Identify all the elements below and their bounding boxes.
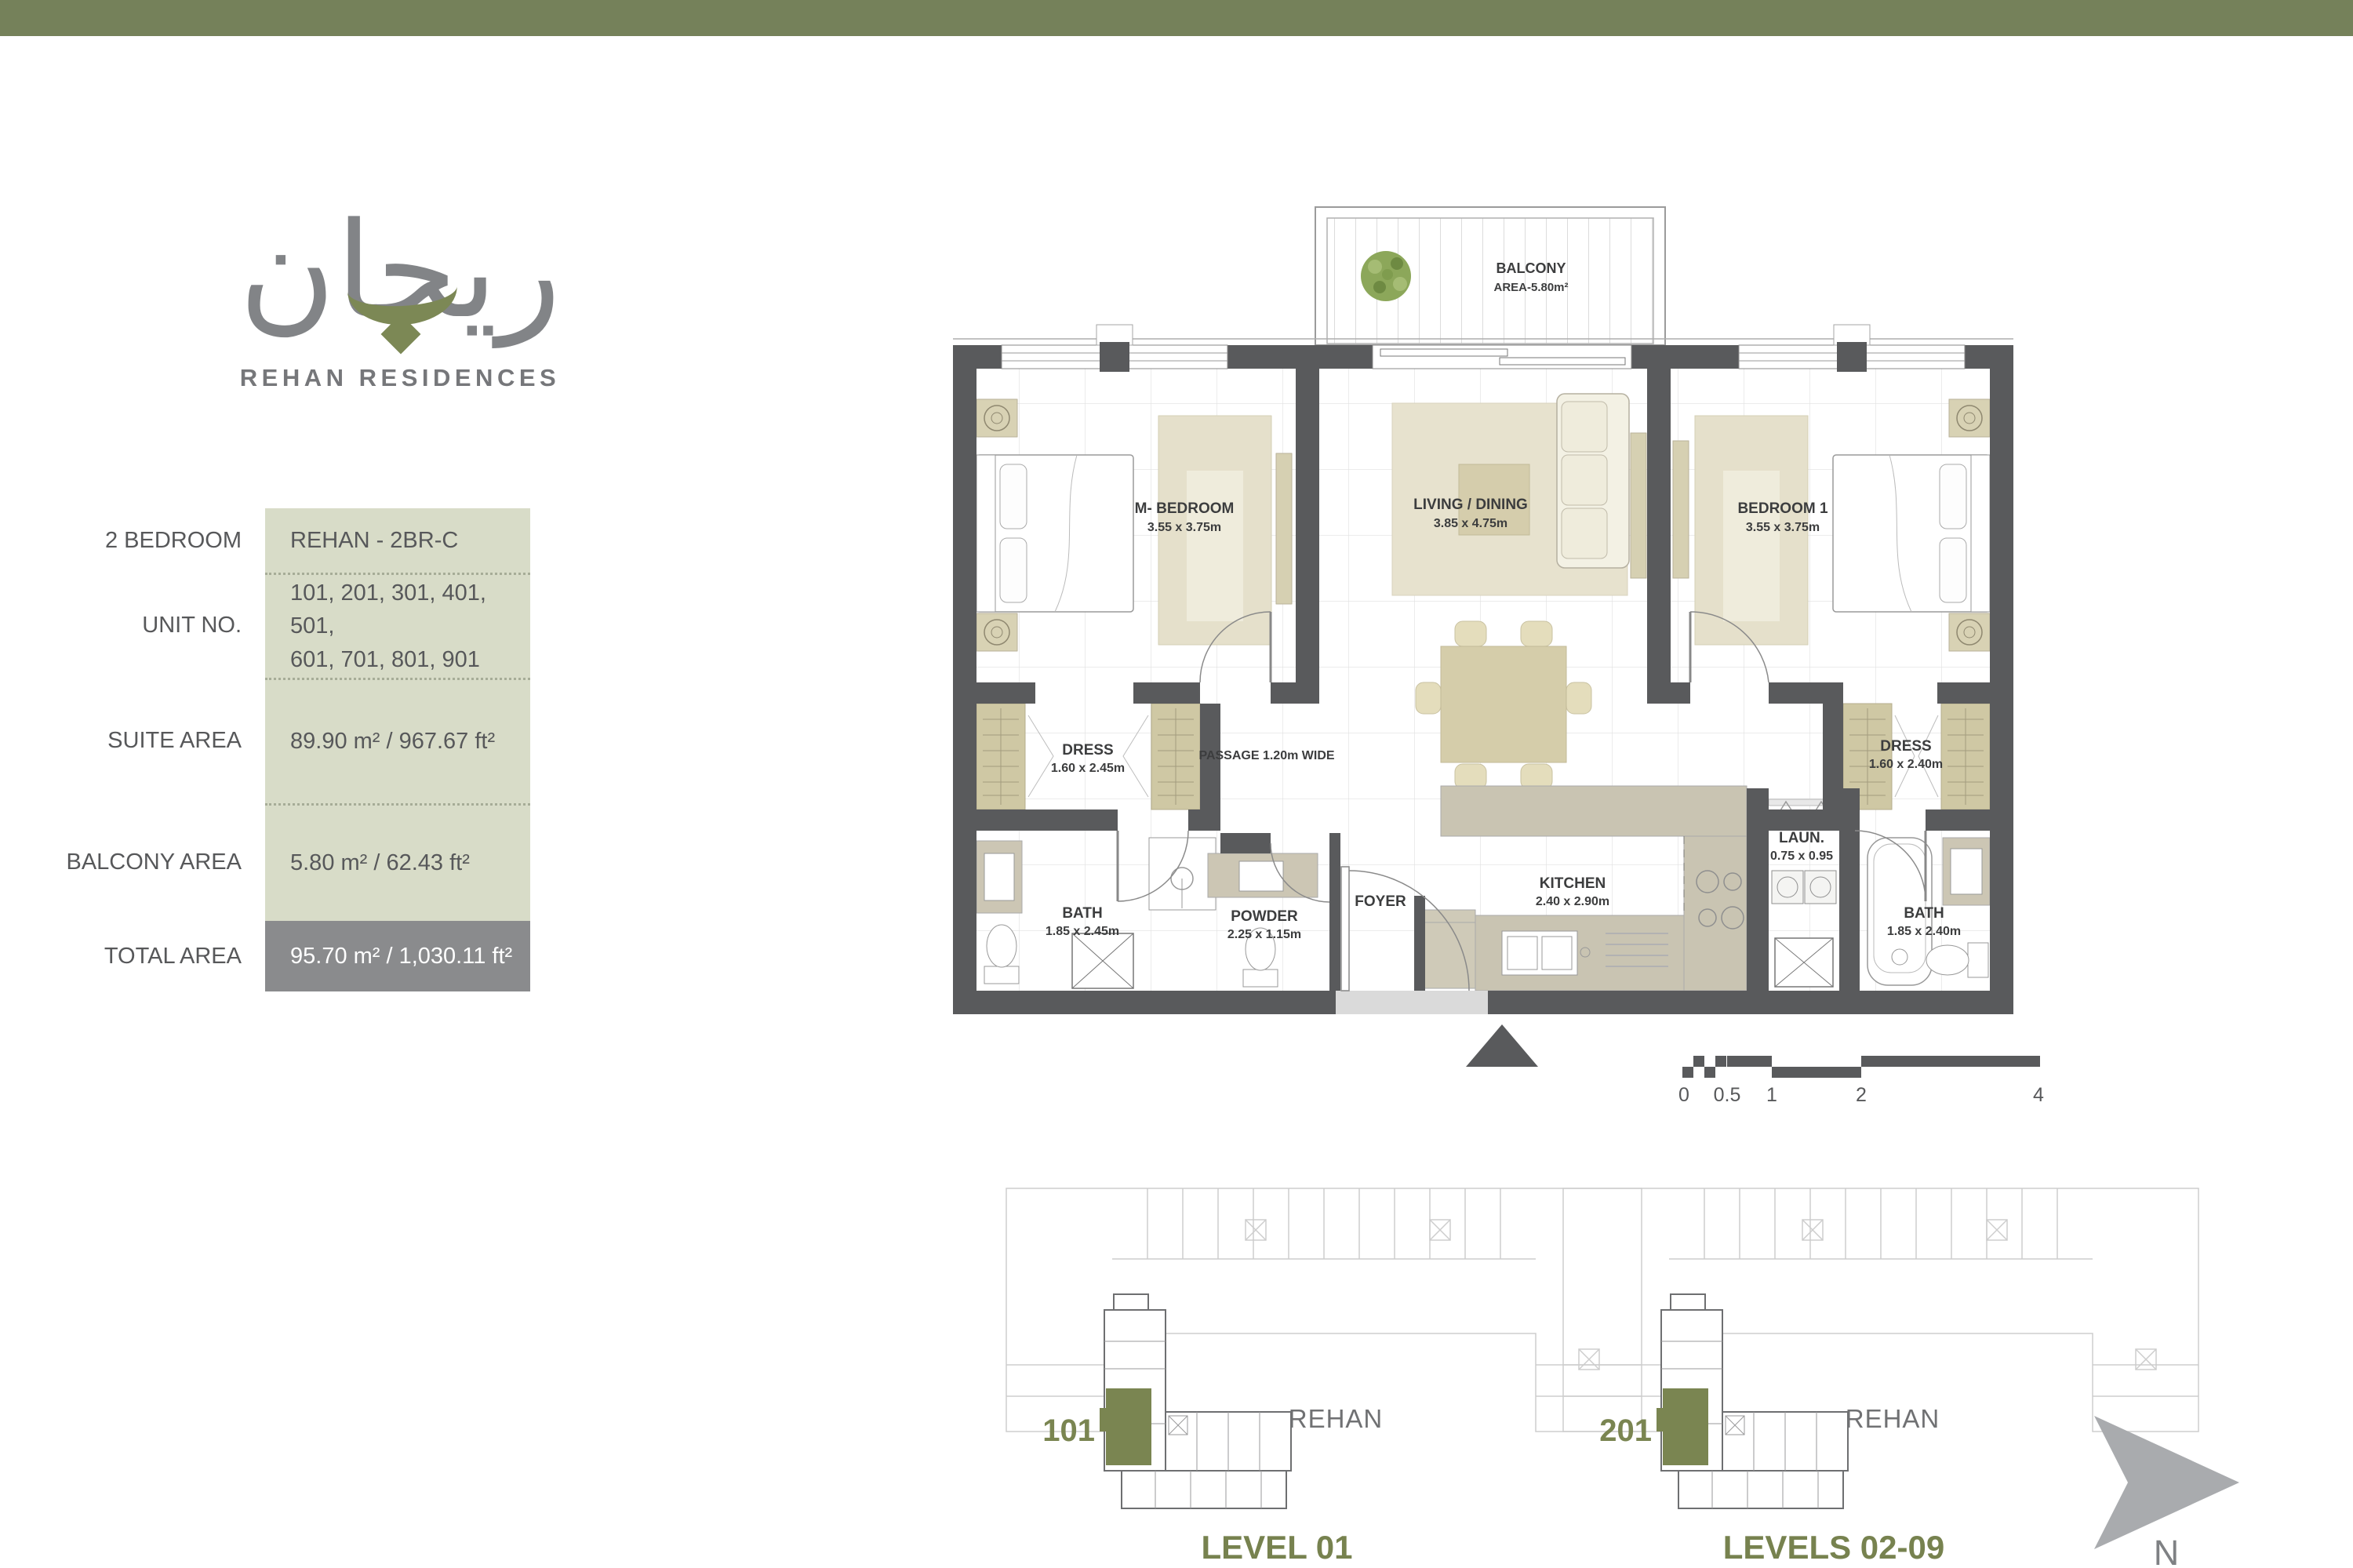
- row-label: TOTAL AREA: [63, 944, 265, 970]
- room-dim-kitchen: 2.40 x 2.90m: [1536, 895, 1609, 908]
- room-dim-bedroom1: 3.55 x 3.75m: [1746, 521, 1820, 534]
- room-label-bedroom1: BEDROOM 1: [1737, 500, 1828, 517]
- room-label-bath-right: BATH: [1904, 905, 1944, 922]
- row-value: 89.90 m² / 967.67 ft²: [290, 729, 530, 755]
- key-plan-building-name: REHAN: [1846, 1404, 1940, 1433]
- scale-tick-4: 4: [2033, 1084, 2044, 1106]
- table-row-unit-no: UNIT NO. 101, 201, 301, 401, 501, 601, 7…: [63, 573, 530, 678]
- row-value: REHAN - 2BR-C: [290, 528, 530, 554]
- row-label: 2 BEDROOM: [63, 528, 265, 554]
- building-outline-faded: [1006, 1188, 1642, 1432]
- room-dim-bath-left: 1.85 x 2.45m: [1046, 925, 1119, 938]
- highlighted-unit-notch: [1657, 1408, 1663, 1432]
- key-plan-level-title: LEVELS 02-09: [1723, 1529, 1944, 1566]
- row-value: 95.70 m² / 1,030.11 ft²: [290, 944, 530, 970]
- row-label: BALCONY AREA: [63, 849, 265, 875]
- room-label-bath-left: BATH: [1062, 905, 1102, 922]
- row-value-line1: 101, 201, 301, 401, 501,: [290, 577, 530, 642]
- table-row-balcony-area: BALCONY AREA 5.80 m² / 62.43 ft²: [63, 803, 530, 921]
- row-label: SUITE AREA: [63, 728, 265, 754]
- key-plan-building-name: REHAN: [1289, 1404, 1384, 1433]
- room-dim-bath-right: 1.85 x 2.40m: [1887, 925, 1961, 938]
- room-dim-living: 3.85 x 4.75m: [1434, 517, 1507, 530]
- key-plan-unit-number: 201: [1599, 1413, 1652, 1448]
- balcony: BALCONY AREA-5.80m²: [1315, 207, 1665, 345]
- balcony-label: BALCONY: [1497, 260, 1566, 276]
- room-dim-dress-left: 1.60 x 2.45m: [1051, 762, 1125, 775]
- room-dim-laundry: 0.75 x 0.95: [1770, 849, 1833, 863]
- highlighted-unit: [1106, 1388, 1151, 1465]
- north-label: N: [2154, 1533, 2180, 1568]
- row-value: 5.80 m² / 62.43 ft²: [290, 850, 530, 876]
- top-accent-bar: [0, 0, 2353, 36]
- highlighted-unit: [1663, 1388, 1708, 1465]
- highlighted-unit-notch: [1100, 1408, 1106, 1432]
- floor-plan-drawing: BALCONY AREA-5.80m²: [953, 206, 2013, 1080]
- room-dim-m-bedroom: 3.55 x 3.75m: [1147, 521, 1221, 534]
- room-dim-powder: 2.25 x 1.15m: [1227, 928, 1301, 941]
- building-outline-faded: [1563, 1188, 2198, 1432]
- scale-tick-05: 0.5: [1714, 1084, 1741, 1106]
- room-dim-dress-right: 1.60 x 2.40m: [1869, 758, 1943, 771]
- north-arrow-icon: [2094, 1416, 2239, 1549]
- scale-tick-0: 0: [1678, 1084, 1689, 1106]
- brand-logo: ريحان REHAN RESIDENCES: [200, 188, 600, 392]
- scale-tick-2: 2: [1856, 1084, 1867, 1106]
- row-value-line2: 601, 701, 801, 901: [290, 643, 530, 676]
- north-compass: N: [2078, 1404, 2275, 1568]
- plant-icon: [1361, 251, 1411, 301]
- room-label-powder: POWDER: [1231, 908, 1298, 925]
- scale-bar: 0 0.5 1 2 4: [1678, 1056, 2047, 1111]
- room-label-kitchen: KITCHEN: [1540, 875, 1606, 892]
- table-row-type: 2 BEDROOM REHAN - 2BR-C: [63, 508, 530, 573]
- room-label-foyer: FOYER: [1355, 893, 1406, 910]
- room-label-passage: PASSAGE 1.20m WIDE: [1198, 749, 1334, 762]
- floorplan-sheet: ريحان REHAN RESIDENCES 2 BEDROOM REHAN -…: [0, 0, 2353, 1568]
- unit-info-table: 2 BEDROOM REHAN - 2BR-C UNIT NO. 101, 20…: [63, 508, 530, 991]
- table-row-suite-area: SUITE AREA 89.90 m² / 967.67 ft²: [63, 678, 530, 803]
- logo-subtitle: REHAN RESIDENCES: [200, 364, 600, 392]
- room-label-m-bedroom: M- BEDROOM: [1135, 500, 1235, 517]
- row-label: UNIT NO.: [63, 613, 265, 638]
- key-plan-level-title: LEVEL 01: [1202, 1529, 1353, 1566]
- table-row-total-area: TOTAL AREA 95.70 m² / 1,030.11 ft²: [63, 921, 530, 991]
- balcony-dim: AREA-5.80m²: [1493, 281, 1568, 294]
- room-label-laundry: LAUN.: [1779, 830, 1824, 846]
- key-plan-unit-number: 101: [1042, 1413, 1095, 1448]
- scale-tick-1: 1: [1766, 1084, 1777, 1106]
- room-label-living: LIVING / DINING: [1413, 497, 1528, 513]
- entrance-arrow-icon: [1466, 1024, 1538, 1067]
- room-label-dress-left: DRESS: [1062, 742, 1113, 759]
- room-label-dress-right: DRESS: [1880, 738, 1931, 755]
